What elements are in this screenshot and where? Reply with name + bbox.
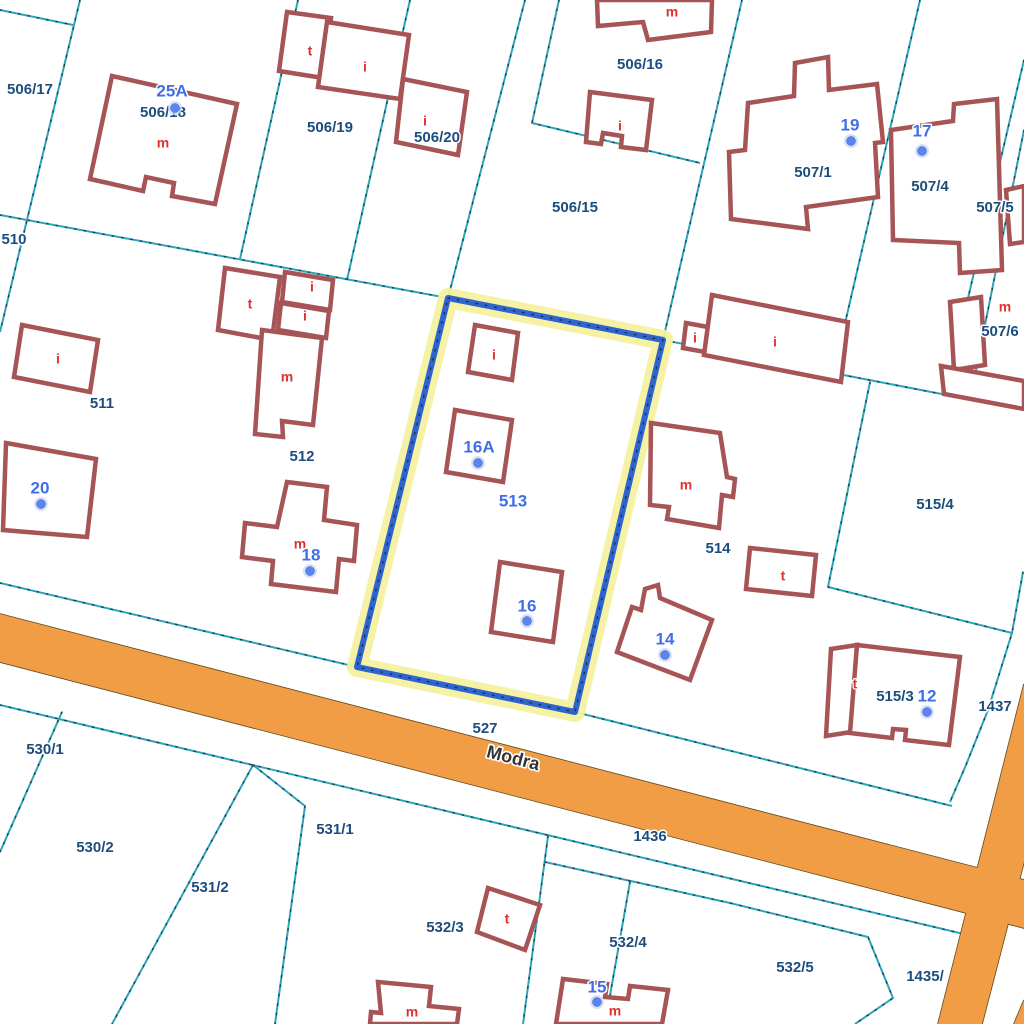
building-use-letter-m: m	[406, 1004, 418, 1020]
cadastral-map[interactable]: mtiimiitiimmiiimmtttmm506/17506/18506/19…	[0, 0, 1024, 1024]
building-use-letter-m: m	[666, 4, 678, 20]
address-marker-18[interactable]: 18	[302, 545, 321, 564]
address-marker-14[interactable]: 14	[656, 629, 675, 648]
parcel-label-513: 513	[499, 491, 527, 510]
parcel-label-527: 527	[472, 720, 497, 737]
address-marker-16[interactable]: 16	[518, 596, 537, 615]
parcel-label-515-4: 515/4	[916, 496, 954, 513]
parcel-label-530-2: 530/2	[76, 839, 114, 856]
building-use-letter-t: t	[853, 676, 858, 692]
parcel-label-532-3: 532/3	[426, 919, 464, 936]
parcel-label-512: 512	[289, 448, 314, 465]
building-use-letter-i: i	[693, 330, 697, 346]
parcel-label-507-6: 507/6	[981, 323, 1019, 340]
address-marker-16A[interactable]: 16A	[463, 437, 494, 456]
parcel-label-531-2: 531/2	[191, 879, 229, 896]
building-use-letter-i: i	[492, 347, 496, 363]
building-use-letter-i: i	[56, 351, 60, 367]
building-use-letter-m: m	[609, 1003, 621, 1019]
building-use-letter-m: m	[281, 369, 293, 385]
parcel-label-530-1: 530/1	[26, 741, 64, 758]
parcel-label-506-20: 506/20	[414, 129, 460, 146]
building-use-letter-i: i	[303, 308, 307, 324]
parcel-label-532-4: 532/4	[609, 934, 647, 951]
parcel-label-1436: 1436	[633, 828, 666, 845]
address-dot-16A[interactable]	[474, 459, 483, 468]
building-use-letter-i: i	[618, 118, 622, 134]
parcel-label-531-1: 531/1	[316, 821, 354, 838]
parcel-label-506-16: 506/16	[617, 56, 663, 73]
building-use-letter-t: t	[248, 296, 253, 312]
address-dot-19[interactable]	[847, 137, 856, 146]
address-dot-20[interactable]	[37, 500, 46, 509]
building-use-letter-i: i	[773, 334, 777, 350]
parcel-label-514: 514	[705, 540, 731, 557]
parcel-label-1435-: 1435/	[906, 968, 944, 985]
address-dot-16[interactable]	[523, 617, 532, 626]
parcel-label-506-15: 506/15	[552, 199, 598, 216]
address-marker-17[interactable]: 17	[913, 121, 932, 140]
address-dot-14[interactable]	[661, 651, 670, 660]
parcel-label-1437: 1437	[978, 698, 1011, 715]
parcel-label-507-5: 507/5	[976, 199, 1014, 216]
building-use-letter-i: i	[310, 279, 314, 295]
building-use-letter-i: i	[423, 113, 427, 129]
building-use-letter-t: t	[781, 568, 786, 584]
parcel-label-515-3: 515/3	[876, 688, 914, 705]
address-marker-20[interactable]: 20	[31, 478, 50, 497]
building-use-letter-m: m	[680, 477, 692, 493]
building-use-letter-t: t	[308, 43, 313, 59]
address-dot-12[interactable]	[923, 708, 932, 717]
address-dot-15[interactable]	[593, 998, 602, 1007]
address-marker-15[interactable]: 15	[588, 977, 607, 996]
building-use-letter-t: t	[505, 911, 510, 927]
address-dot-18[interactable]	[306, 567, 315, 576]
address-marker-19[interactable]: 19	[841, 115, 860, 134]
building-use-letter-m: m	[157, 135, 169, 151]
parcel-label-506-17: 506/17	[7, 81, 53, 98]
parcel-label-507-4: 507/4	[911, 178, 949, 195]
building-507-6	[950, 297, 985, 370]
parcel-label-507-1: 507/1	[794, 164, 832, 181]
building-use-letter-m: m	[999, 299, 1011, 315]
parcel-label-511: 511	[90, 395, 114, 412]
address-dot-25A[interactable]	[171, 104, 180, 113]
parcel-label-532-5: 532/5	[776, 959, 814, 976]
address-marker-25A[interactable]: 25A	[156, 81, 187, 100]
address-dot-17[interactable]	[918, 147, 927, 156]
building-use-letter-i: i	[363, 59, 367, 75]
house-20	[3, 443, 96, 537]
parcel-label-506-19: 506/19	[307, 119, 353, 136]
address-marker-12[interactable]: 12	[918, 686, 937, 705]
map-viewport[interactable]: mtiimiitiimmiiimmtttmm506/17506/18506/19…	[0, 0, 1024, 1024]
parcel-label-510: 510	[1, 231, 26, 248]
